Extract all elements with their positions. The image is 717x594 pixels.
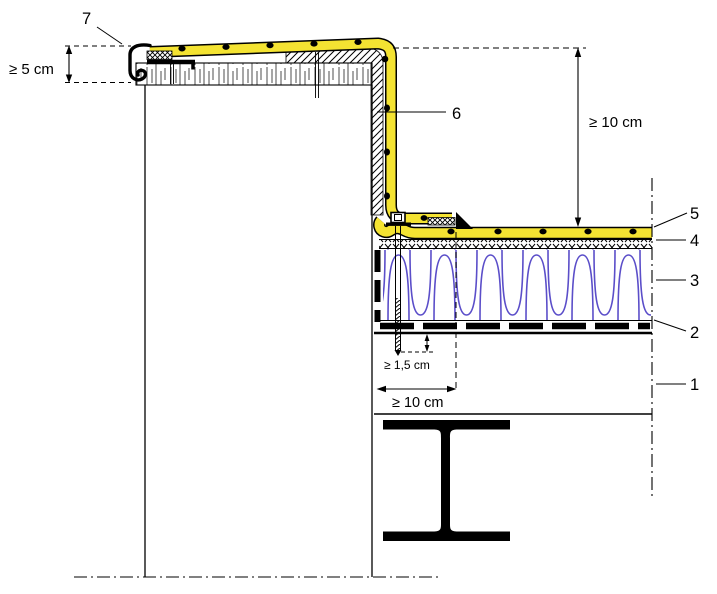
arrow-right-icon xyxy=(447,386,457,392)
separation-layer-pattern xyxy=(379,240,652,249)
membrane-dot xyxy=(447,229,454,235)
insulation-pattern xyxy=(383,250,651,321)
arrow-down-icon xyxy=(425,345,430,352)
membrane-dot xyxy=(421,215,428,221)
arrow-up-icon xyxy=(425,334,430,341)
dimension-fastener-embedment: ≥ 1,5 cm xyxy=(384,334,433,372)
roof-edge-detail-drawing: ≥ 5 cm ≥ 10 cm ≥ 1,5 cm ≥ 10 cm 7 6 5 xyxy=(0,0,717,594)
screw-tip xyxy=(395,350,402,356)
membrane-dot xyxy=(384,193,390,200)
membrane-dot xyxy=(384,105,390,112)
callout-6: 6 xyxy=(452,105,461,123)
arrow-up-icon xyxy=(575,48,581,58)
membrane-dot xyxy=(382,56,389,63)
callout-7: 7 xyxy=(82,10,91,28)
leader-2 xyxy=(654,320,686,331)
dim-label-upstand-right: ≥ 10 cm xyxy=(589,114,642,131)
arrow-down-icon xyxy=(575,218,581,228)
screw-thread xyxy=(396,298,401,350)
membrane-dot xyxy=(222,44,229,50)
parapet-wall xyxy=(136,52,372,577)
callout-5: 5 xyxy=(690,205,699,223)
membrane-dot xyxy=(539,229,546,235)
separation-layer xyxy=(379,240,652,249)
membrane-dot xyxy=(178,46,185,52)
screw-washer-plate xyxy=(386,223,411,226)
membrane-dot xyxy=(310,41,317,47)
timber-coping xyxy=(136,63,372,85)
dimension-upstand-right: ≥ 10 cm xyxy=(393,48,642,228)
detail-svg: ≥ 5 cm ≥ 10 cm ≥ 1,5 cm ≥ 10 cm 7 6 5 xyxy=(0,0,717,594)
callout-2: 2 xyxy=(690,324,699,342)
membrane-dot xyxy=(494,229,501,235)
callout-1: 1 xyxy=(690,376,699,394)
membrane-dot xyxy=(354,39,361,45)
steel-beam xyxy=(383,420,510,541)
membrane-dot xyxy=(629,229,636,235)
wall-faces xyxy=(145,85,372,577)
membrane-dot xyxy=(384,149,390,156)
overlap-weld-strip xyxy=(428,218,455,226)
dimension-upstand-left: ≥ 5 cm xyxy=(9,46,131,84)
dim-extension-dashes xyxy=(65,46,131,83)
membrane-dot xyxy=(266,42,273,48)
dim-label-upstand-left: ≥ 5 cm xyxy=(9,61,54,78)
arrow-down-icon xyxy=(66,75,72,84)
arrow-left-icon xyxy=(377,386,387,392)
leader-7 xyxy=(97,27,122,44)
callout-3: 3 xyxy=(690,272,699,290)
dim-label-membrane-overlap: ≥ 10 cm xyxy=(392,395,443,411)
clamp-weld-strip xyxy=(147,51,172,60)
arrow-up-icon xyxy=(66,46,72,55)
seal-triangle xyxy=(456,212,473,229)
membrane-dot xyxy=(584,229,591,235)
dim-label-fastener-embedment: ≥ 1,5 cm xyxy=(384,358,430,372)
leader-5 xyxy=(654,213,687,227)
callout-4: 4 xyxy=(690,232,699,250)
insulation-layer xyxy=(379,250,652,321)
